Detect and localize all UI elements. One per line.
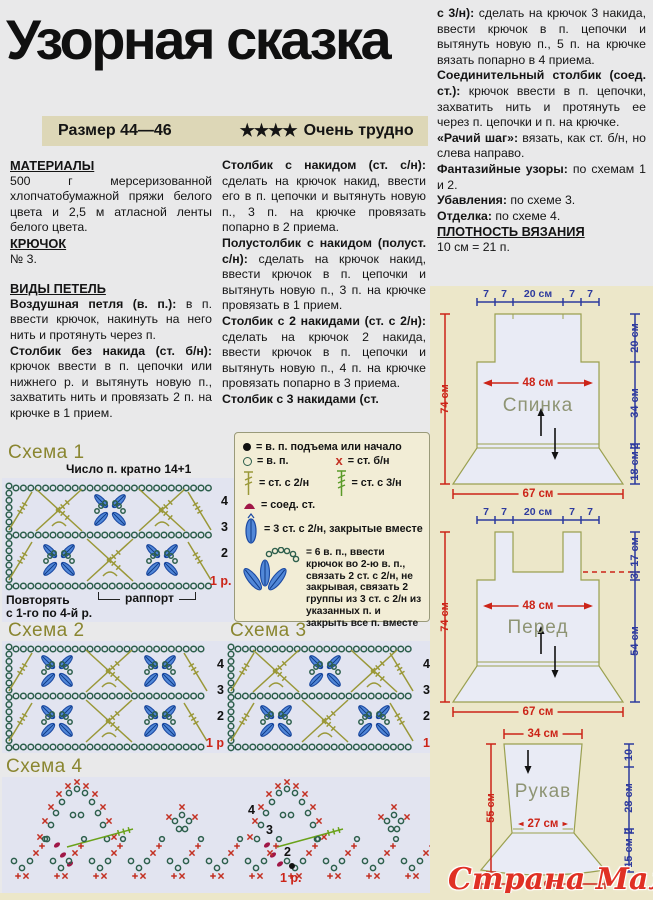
size-label: Размер 44—46 [58, 122, 172, 140]
stitch-paragraph: Полустолбик с накидом (полуст. с/н): сде… [222, 236, 426, 314]
stitch-paragraph: Столбик с 3 накидами (ст. [222, 392, 426, 408]
sleeve-right-measure: 2 [623, 828, 635, 834]
row-label: 4 [221, 494, 228, 508]
stitch-types-heading: ВИДЫ ПЕТЕЛЬ [10, 281, 212, 297]
front-left-measure: 74 см [439, 602, 451, 632]
repeat-note: с 1-го по 4-й р. [6, 607, 92, 620]
stitch-paragraph: Воздушная петля (в. п.): в п. ввести крю… [10, 297, 212, 344]
front-right-measure: 17 см [629, 537, 641, 567]
bottom-strip [0, 893, 653, 900]
row-label: 4 [217, 657, 224, 671]
back-right-measure: 20 см [629, 323, 641, 353]
column-instructions: с 3/н): сделать на крючок 3 накида, ввес… [437, 6, 646, 256]
symbol-legend: = в. п. подъема или начало = в. п. х= ст… [234, 432, 430, 622]
chain-turn-icon [243, 443, 251, 451]
schema4-chart: 4 3 2 1 р. [2, 777, 438, 893]
schema1-note: Число п. кратно 14+1 [66, 462, 191, 476]
schema1-chart: 4 3 2 1 р. Повторять с 1-го по 4-й р. ра… [2, 478, 234, 622]
difficulty-label: Очень трудно [304, 122, 414, 140]
stitch-paragraph: Столбик с накидом (ст. с/н): сделать на … [222, 158, 426, 236]
back-bottom-measure: 67 см [519, 488, 558, 500]
row-label: 2 [284, 845, 291, 859]
sleeve-right-measure: 28 см [623, 783, 635, 813]
back-top-measures: 7720 см77 [477, 288, 599, 300]
stitch-paragraph: Столбик без накида (ст. б/н): крючок вве… [10, 344, 212, 422]
row-label: 2 [221, 546, 228, 560]
schema4-diagram [2, 777, 438, 893]
row-label: 2 [217, 709, 224, 723]
row-label: 4 [423, 657, 430, 671]
legend-text: = в. п. [257, 455, 288, 467]
front-right-measure: 3 [629, 573, 641, 579]
difficulty: ★★★★ Очень трудно [240, 121, 414, 141]
row-label: 1 [423, 736, 430, 750]
front-right-measure: 54 см [629, 626, 641, 656]
legend-text: = в. п. подъема или начало [256, 441, 402, 453]
dc3-icon [336, 469, 347, 497]
gauge-text: 10 см = 21 п. [437, 240, 646, 256]
row-label: 1 р. [210, 574, 232, 588]
stitch-paragraph: Соединительный столбик (соед. ст.): крюч… [437, 68, 646, 130]
schema3-chart: 4 3 2 1 [224, 641, 438, 753]
chain-icon [243, 457, 252, 466]
row-label: 2 [423, 709, 430, 723]
schema2-diagram [2, 641, 214, 753]
stitch-paragraph: с 3/н): сделать на крючок 3 накида, ввес… [437, 6, 646, 68]
stitch-paragraph: Убавления: по схеме 3. [437, 193, 646, 209]
row-label: 3 [221, 520, 228, 534]
schema1-diagram [2, 480, 218, 592]
sleeve-left-measure: 55 см [485, 793, 497, 823]
materials-heading: МАТЕРИАЛЫ [10, 158, 212, 174]
back-right-measure: 2 [629, 443, 641, 449]
schema3-title: Схема 3 [230, 620, 307, 642]
row-label: 3 [266, 823, 273, 837]
schema1-title: Схема 1 [8, 442, 85, 464]
size-difficulty-band: Размер 44—46 ★★★★ Очень трудно [42, 116, 428, 146]
stitch-paragraph: Фантазийные узоры: по схемам 1 и 2. [437, 162, 646, 193]
watermark: Страна Мам [448, 862, 653, 897]
legend-text: = ст. с 2/н [259, 477, 309, 489]
front-label: Перед [507, 617, 568, 639]
sc-icon: х [336, 456, 343, 466]
legend-text: = ст. б/н [348, 455, 390, 467]
row-label: 1 р. [280, 871, 302, 885]
legend-text: = 3 ст. с 2/н, закрытые вместе [264, 523, 423, 535]
row-label: 4 [248, 803, 255, 817]
cluster-icon [243, 513, 259, 545]
schema4-title: Схема 4 [6, 756, 83, 778]
sleeve-top-measure: 34 см [524, 728, 563, 740]
materials-text: 500 г мерсеризованной хлопчатобумажной п… [10, 174, 212, 236]
star-rating-icon: ★★★★ [240, 121, 297, 141]
rapport-label: раппорт [120, 591, 179, 605]
stitch-paragraph: Отделка: по схеме 4. [437, 209, 646, 225]
column-materials: МАТЕРИАЛЫ 500 г мерсеризованной хлопчато… [10, 158, 212, 422]
back-left-measure: 74 см [439, 384, 451, 414]
schema2-title: Схема 2 [8, 620, 85, 642]
back-label: Спинка [503, 395, 573, 417]
column-stitches: Столбик с накидом (ст. с/н): сделать на … [222, 158, 426, 408]
stitch-paragraph: Столбик с 2 накидами (ст. с 2/н): сделат… [222, 314, 426, 392]
back-right-measure: 18 см [629, 451, 641, 481]
row-label: 3 [423, 683, 430, 697]
legend-text: = ст. с 3/н [352, 477, 402, 489]
stitch-paragraph: «Рачий шаг»: вязать, как ст. б/н, но сле… [437, 131, 646, 162]
hook-heading: КРЮЧОК [10, 236, 212, 252]
sleeve-right-measure: 10 [623, 749, 635, 761]
gauge-heading: ПЛОТНОСТЬ ВЯЗАНИЯ [437, 224, 646, 240]
back-right-measure: 34 см [629, 388, 641, 418]
schema3-diagram [224, 641, 420, 753]
dc2-icon [243, 470, 254, 496]
front-top-measures: 7720 см77 [477, 506, 599, 518]
back-width-measure: 48 см [519, 377, 558, 389]
back-schematic: 7720 см77 74 см 48 см Спинка 20 см 34 см… [433, 288, 649, 502]
hook-text: № 3. [10, 252, 212, 268]
schematics-panel: 7720 см77 74 см 48 см Спинка 20 см 34 см… [430, 286, 653, 900]
legend-text: = 6 в. п., ввести крючок во 2-ю в. п., с… [306, 547, 423, 630]
legend-text: = соед. ст. [261, 499, 315, 511]
fan-icon [243, 547, 301, 599]
page-title: Узорная сказка [6, 12, 430, 68]
front-width-measure: 48 см [519, 600, 558, 612]
front-schematic: 7720 см77 74 см 48 см Перед 17 см 3 54 с… [433, 506, 649, 720]
sleeve-width-measure: 27 см [524, 818, 563, 830]
schema2-chart: 4 3 2 1 р. [2, 641, 232, 753]
front-shape [433, 506, 649, 720]
sleeve-label: Рукав [515, 781, 572, 803]
slip-stitch-icon [243, 501, 256, 510]
front-bottom-measure: 67 см [519, 706, 558, 718]
row-label: 3 [217, 683, 224, 697]
